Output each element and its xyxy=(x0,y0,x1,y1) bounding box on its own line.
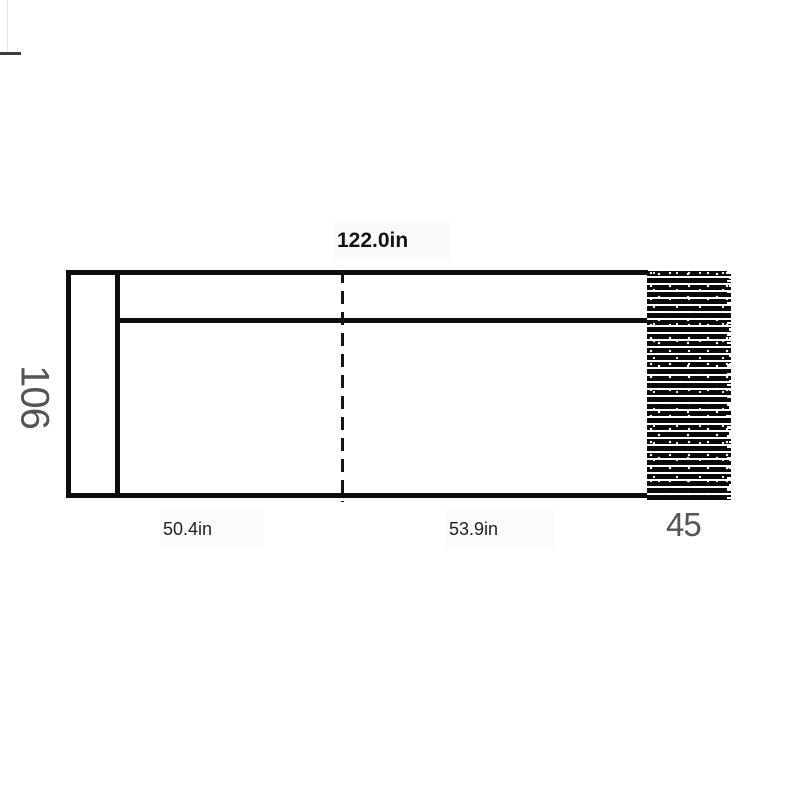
right-section-dimension-label: 53.9in xyxy=(449,510,498,548)
window-edge-horizontal-line xyxy=(0,52,21,55)
sofa-top-border-line xyxy=(66,270,648,275)
top-dimension-label: 122.0in xyxy=(334,222,453,259)
left-section-dimension-label: 50.4in xyxy=(163,510,212,548)
sofa-bottom-border-line xyxy=(66,493,648,498)
section-divider-dashed-line xyxy=(341,270,344,502)
hatch-section-dimension-label: 45 xyxy=(666,506,701,544)
hatch-ragged-edge xyxy=(729,271,731,500)
sofa-left-border-line xyxy=(66,270,71,498)
window-edge-vertical-line xyxy=(7,0,8,52)
sofa-armrest-divider-line xyxy=(115,270,120,498)
height-dimension-label: 106 xyxy=(12,365,57,429)
sofa-backrest-line xyxy=(115,318,648,323)
hatched-chaise-section xyxy=(647,271,731,500)
dimension-diagram-canvas: 122.0in 106 50.4in 53.9in 45 xyxy=(0,0,800,800)
